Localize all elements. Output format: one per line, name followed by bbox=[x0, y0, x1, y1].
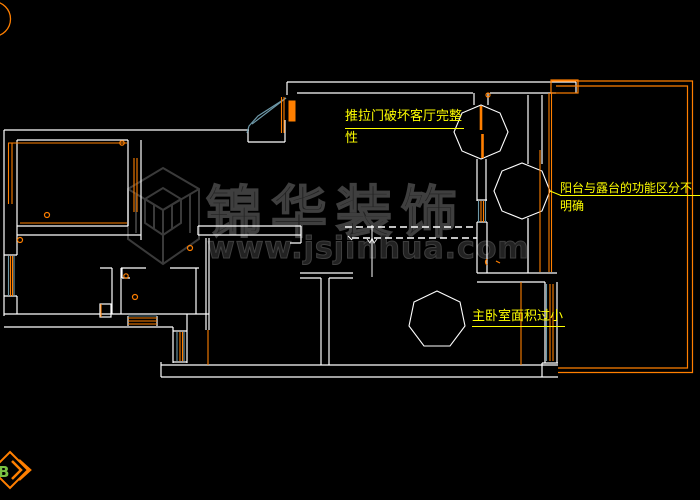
entry-door-swing bbox=[247, 98, 286, 133]
annotation-underlines bbox=[345, 129, 700, 327]
note-bedroom-line1: 主卧室面积过小 bbox=[472, 309, 563, 324]
compass-letter: B bbox=[0, 463, 9, 481]
note-sliding-door-line2: 性 bbox=[345, 131, 462, 146]
railing-dashed-lines bbox=[345, 227, 477, 238]
compass-marker: B bbox=[0, 452, 30, 488]
entry-door-leaf bbox=[289, 101, 296, 122]
floorplan-drawing: B bbox=[0, 0, 700, 500]
terrace-border bbox=[551, 80, 693, 373]
corner-arc-symbol bbox=[0, 2, 11, 37]
column-core-line bbox=[481, 106, 483, 158]
orange-trim-lines bbox=[8, 93, 553, 365]
note-sliding-door-line1: 推拉门破坏客厅完整 bbox=[345, 109, 462, 124]
plant-heptagon bbox=[409, 291, 465, 346]
window-glass-lines bbox=[9, 201, 547, 361]
note-balcony: 阳台与露台的功能区分不 明确 bbox=[560, 181, 692, 214]
note-balcony-line1: 阳台与露台的功能区分不 bbox=[560, 181, 692, 196]
cad-viewport[interactable]: 锦华装饰 www.jsjinhua.com bbox=[0, 0, 700, 500]
note-sliding-door: 推拉门破坏客厅完整 性 bbox=[345, 109, 462, 146]
note-bedroom: 主卧室面积过小 bbox=[472, 309, 563, 324]
note-balcony-line2: 明确 bbox=[560, 199, 692, 214]
plant-octagon bbox=[494, 163, 550, 273]
walls bbox=[4, 82, 576, 377]
